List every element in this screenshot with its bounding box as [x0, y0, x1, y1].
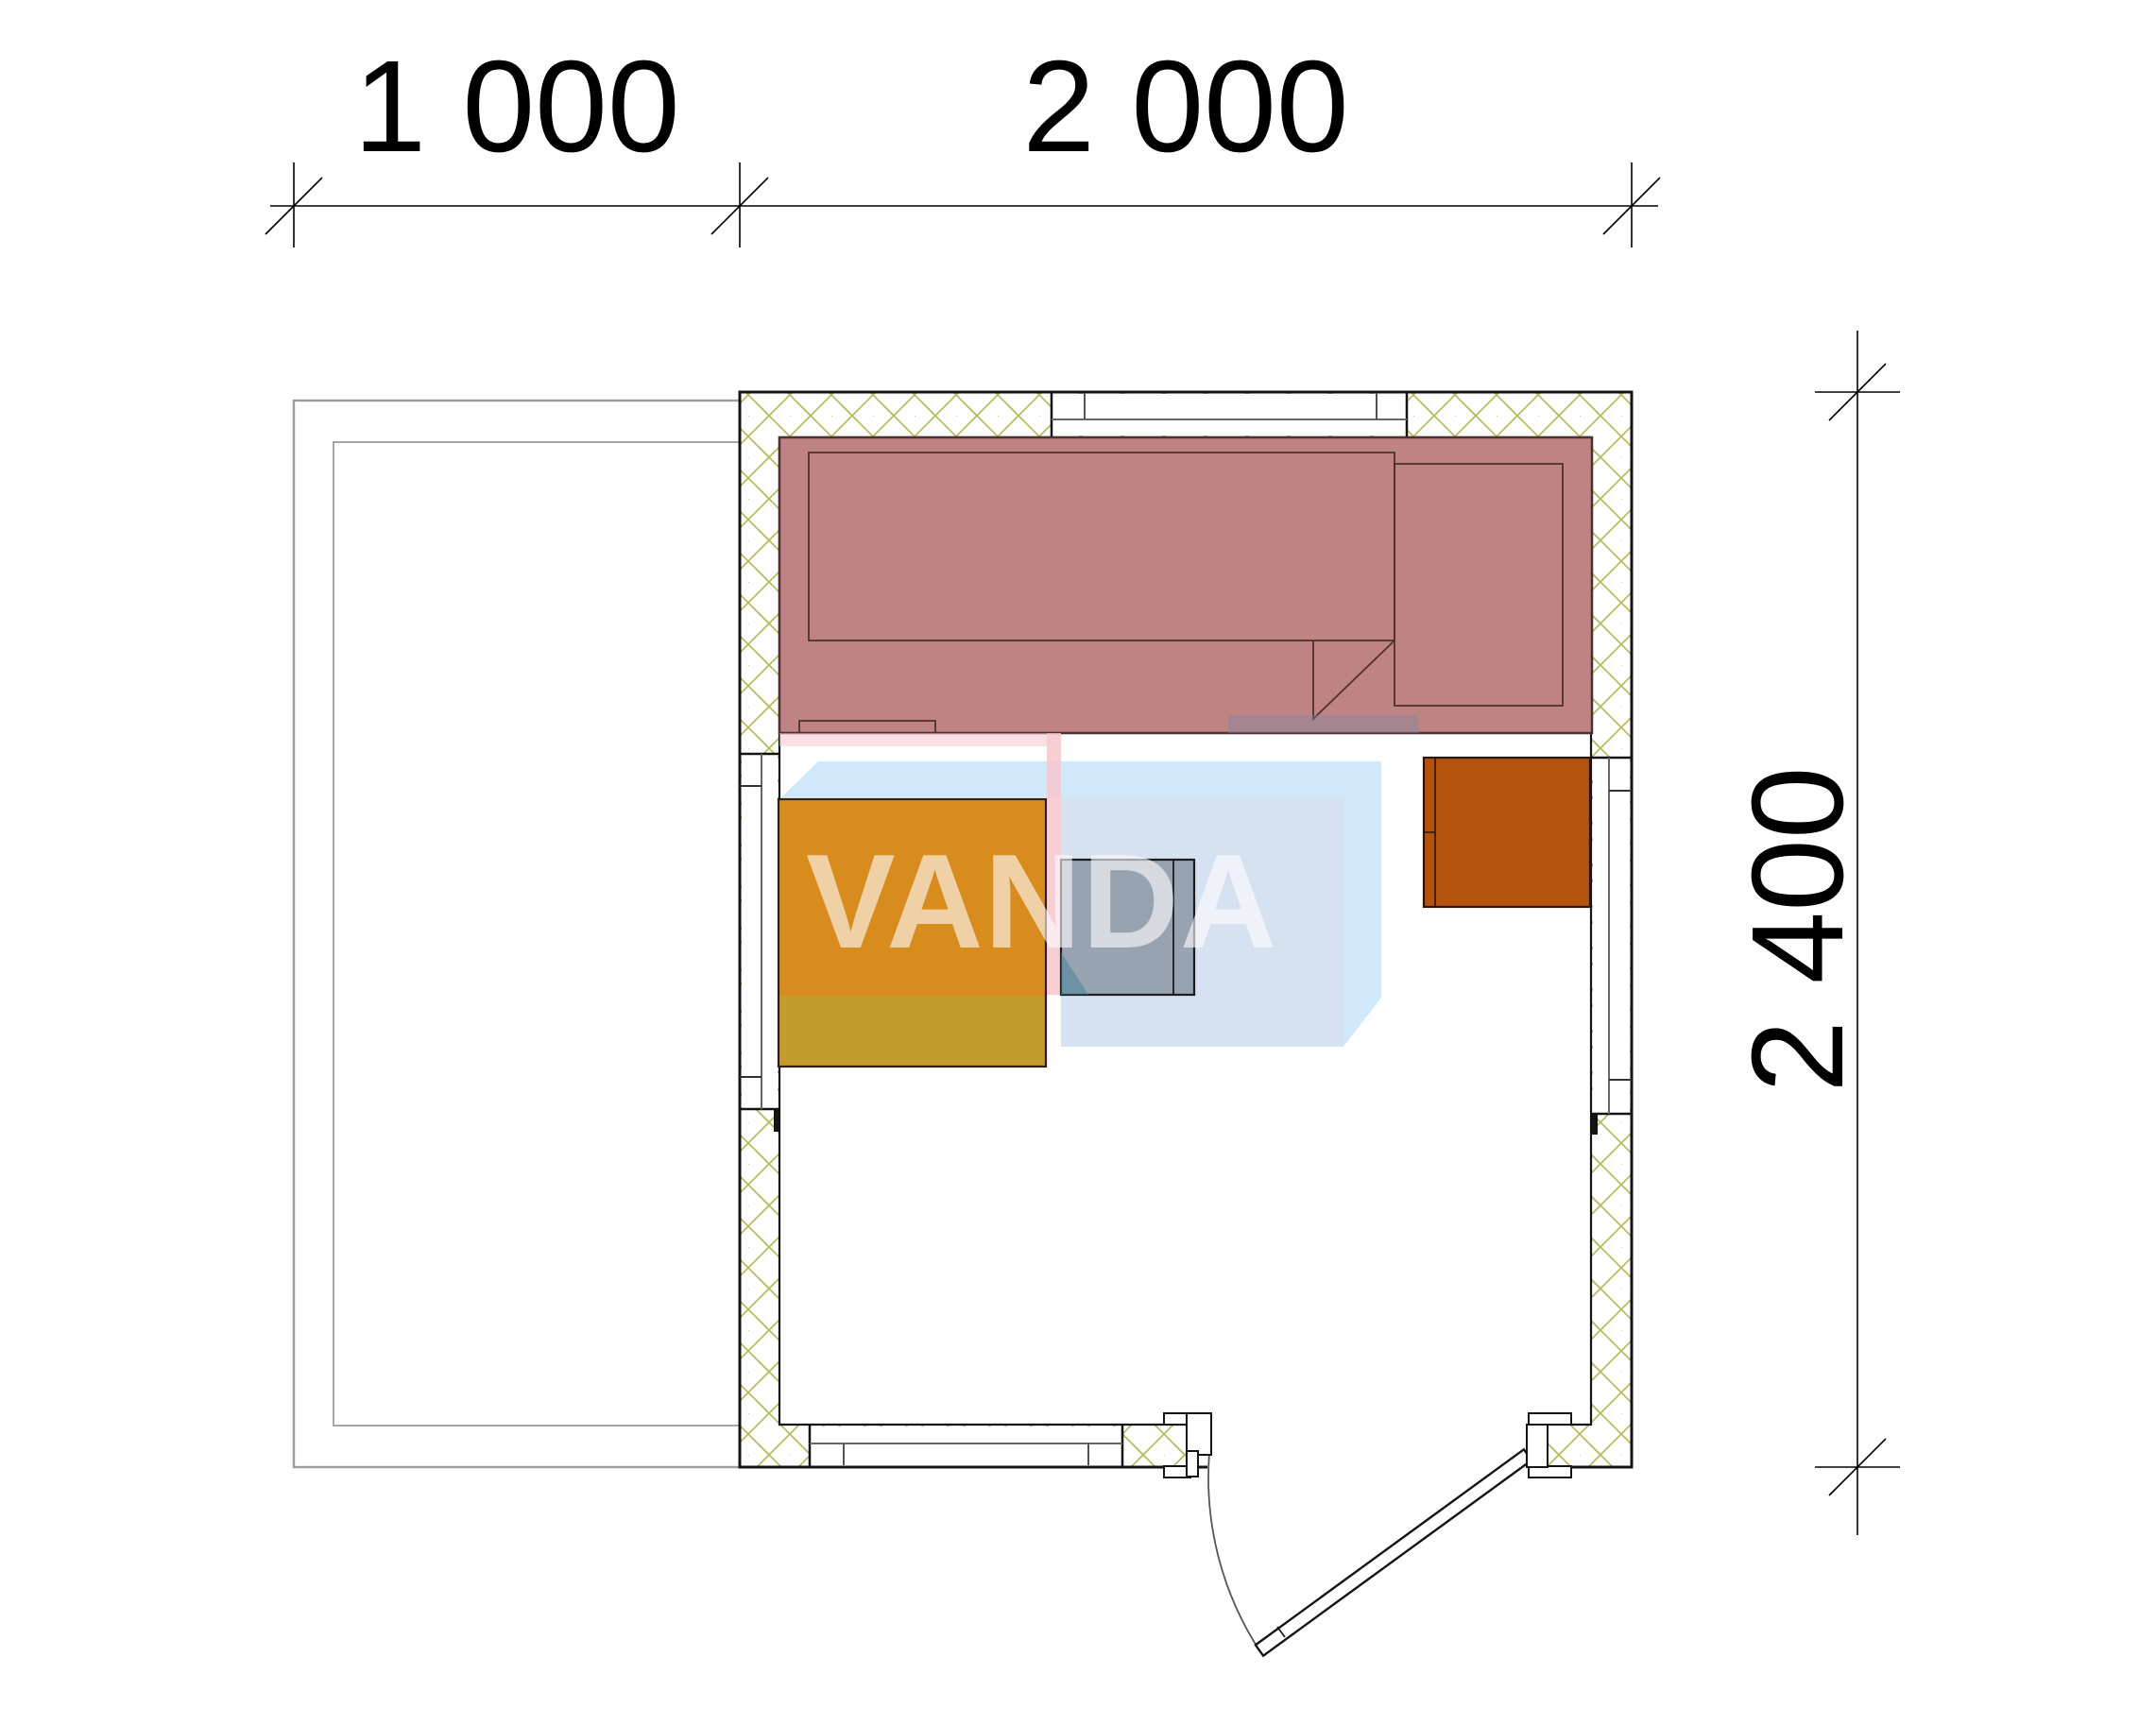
watermark-top-face [780, 761, 1381, 798]
opening-west-window [742, 755, 778, 1108]
opening-north-window [1052, 394, 1406, 436]
opening-door [1208, 1422, 1527, 1470]
watermark-pink-band [779, 733, 1047, 746]
dimension-label-cabin-width: 2 000 [1022, 34, 1348, 179]
cabinet-band [780, 996, 1044, 1065]
west-window-block [774, 1109, 780, 1132]
door-swing-arc [1208, 1453, 1259, 1650]
terrace-inner-edge [334, 442, 740, 1426]
east-window-block [1591, 1114, 1598, 1135]
dimension-label-cabin-depth: 2 400 [1725, 766, 1871, 1092]
watermark-right-face [1343, 761, 1381, 1047]
terrace [294, 401, 740, 1467]
opening-south-window [811, 1426, 1121, 1466]
watermark-gray-edge [1228, 715, 1419, 733]
door-leaf [1256, 1449, 1531, 1655]
floor-plan-drawing: VANDA 1 000 2 000 2 400 [0, 0, 2156, 1725]
opening-east-window [1593, 759, 1630, 1113]
door-frame-plate-right-top [1529, 1413, 1571, 1425]
watermark-text: VANDA [806, 827, 1277, 977]
heater-body [1424, 758, 1590, 907]
bench-slab [779, 437, 1592, 733]
terrace-outer-edge [294, 401, 740, 1467]
sauna-benches [779, 437, 1592, 733]
door-jamb-left [1187, 1413, 1211, 1455]
door-jamb-right [1527, 1425, 1548, 1467]
dimension-label-terrace-width: 1 000 [353, 34, 679, 179]
floor-plan-canvas: VANDA 1 000 2 000 2 400 [0, 0, 2156, 1725]
heater [1424, 758, 1590, 907]
door-jamb-left-step [1187, 1451, 1198, 1477]
